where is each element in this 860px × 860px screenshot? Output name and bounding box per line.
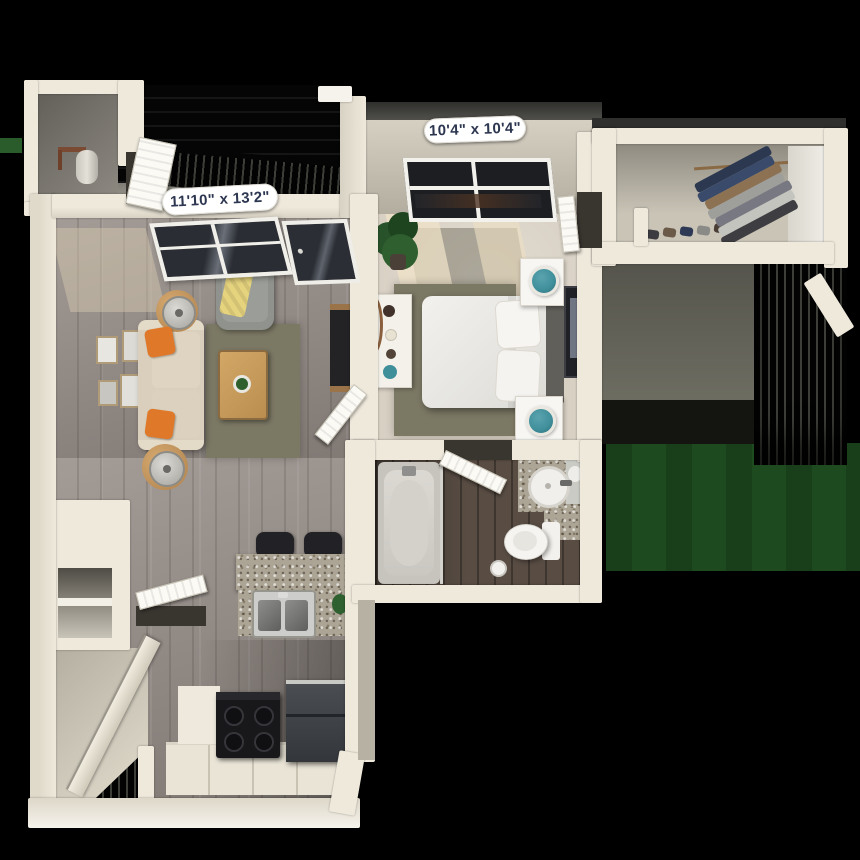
stove-burner: [254, 706, 274, 726]
dimension-label-living-room-text: 11'10" x 13'2": [170, 189, 270, 209]
bathtub-basin: [390, 480, 428, 566]
wall-art-frame: [96, 336, 118, 364]
window-mullion-v: [210, 224, 227, 274]
dresser-vase: [386, 349, 396, 359]
dresser-vase: [383, 305, 395, 317]
pantry-shelf: [58, 598, 112, 606]
table-lamp: [162, 296, 196, 330]
sink-drain: [545, 483, 551, 489]
shower-glass: [440, 462, 443, 584]
balcony-glass-door: [281, 219, 360, 285]
breakfast-bar: [236, 554, 354, 590]
vanity-sink: [528, 466, 570, 508]
plant-pot: [390, 254, 406, 270]
kitchen-wall-outer-face: [358, 600, 375, 760]
nightstand-lamp: [526, 406, 556, 436]
patio-concrete: [598, 253, 756, 403]
sink-basin: [258, 600, 281, 631]
bathroom-bottom-wall: [352, 585, 602, 603]
closet-top-wall: [592, 128, 846, 144]
bathtub: [378, 462, 440, 584]
left-counter: [178, 686, 220, 744]
dresser-candle: [385, 329, 397, 341]
sink-basin: [285, 600, 308, 631]
dimension-label-bedroom-text: 10'4" x 10'4": [429, 120, 521, 138]
bottom-wall: [28, 798, 360, 828]
kitchen-faucet: [278, 592, 288, 598]
orange-pillow: [144, 326, 176, 358]
wall-art-frame: [98, 380, 118, 406]
hall-doorway: [136, 606, 206, 626]
bedroom-window: [403, 158, 558, 222]
patio-shadow: [598, 400, 756, 444]
copper-pipe-vertical: [58, 150, 62, 170]
fridge-divider: [286, 714, 348, 717]
toilet-bowl: [504, 524, 548, 560]
closet-bottom-wall: [592, 242, 834, 264]
shoe: [696, 225, 710, 236]
balcony-wall-cap: [318, 86, 352, 102]
toilet-seat: [513, 531, 537, 551]
bathroom-right-wall: [580, 440, 602, 603]
dimension-label-bedroom: 10'4" x 10'4": [424, 115, 527, 144]
coffee-table: [218, 350, 268, 420]
stove-back-panel: [216, 692, 280, 700]
orange-pillow: [144, 408, 176, 440]
stove-burner: [224, 732, 244, 752]
table-lamp: [149, 451, 185, 487]
closet-divider-stub: [634, 208, 648, 246]
bed-pillow: [494, 299, 541, 350]
tv-stand: [330, 304, 350, 392]
patio-railing: [754, 253, 847, 465]
pantry-niche: [58, 568, 112, 638]
window-mullion-h: [410, 186, 550, 190]
refrigerator: [286, 680, 348, 762]
shoe: [679, 226, 693, 237]
door-handle: [297, 249, 303, 254]
window-reflection: [414, 194, 541, 208]
nightstand-lamp: [529, 266, 559, 296]
window-mullion-v: [471, 162, 481, 218]
toilet-paper-holder: [490, 560, 507, 577]
grass-sliver-left: [0, 138, 22, 153]
bed-pillow: [495, 349, 542, 403]
left-wall: [30, 194, 56, 822]
tv-stand-cap: [330, 304, 350, 310]
kitchen-sink: [252, 590, 316, 638]
closet-doorway: [577, 192, 602, 248]
stove-burner: [224, 706, 244, 726]
living-room-window: [149, 217, 293, 282]
coffee-table-plant: [236, 378, 248, 390]
living-bedroom-wall: [350, 194, 378, 460]
shoe: [662, 227, 676, 238]
dresser-teal-pot: [383, 365, 397, 379]
stove-burner: [254, 732, 274, 752]
water-heater: [76, 150, 98, 184]
stove: [216, 692, 280, 758]
tub-faucet: [402, 466, 416, 476]
vanity-faucet: [560, 480, 572, 486]
floorplan-render: 11'10" x 13'2" 10'4" x 10'4": [0, 0, 860, 860]
